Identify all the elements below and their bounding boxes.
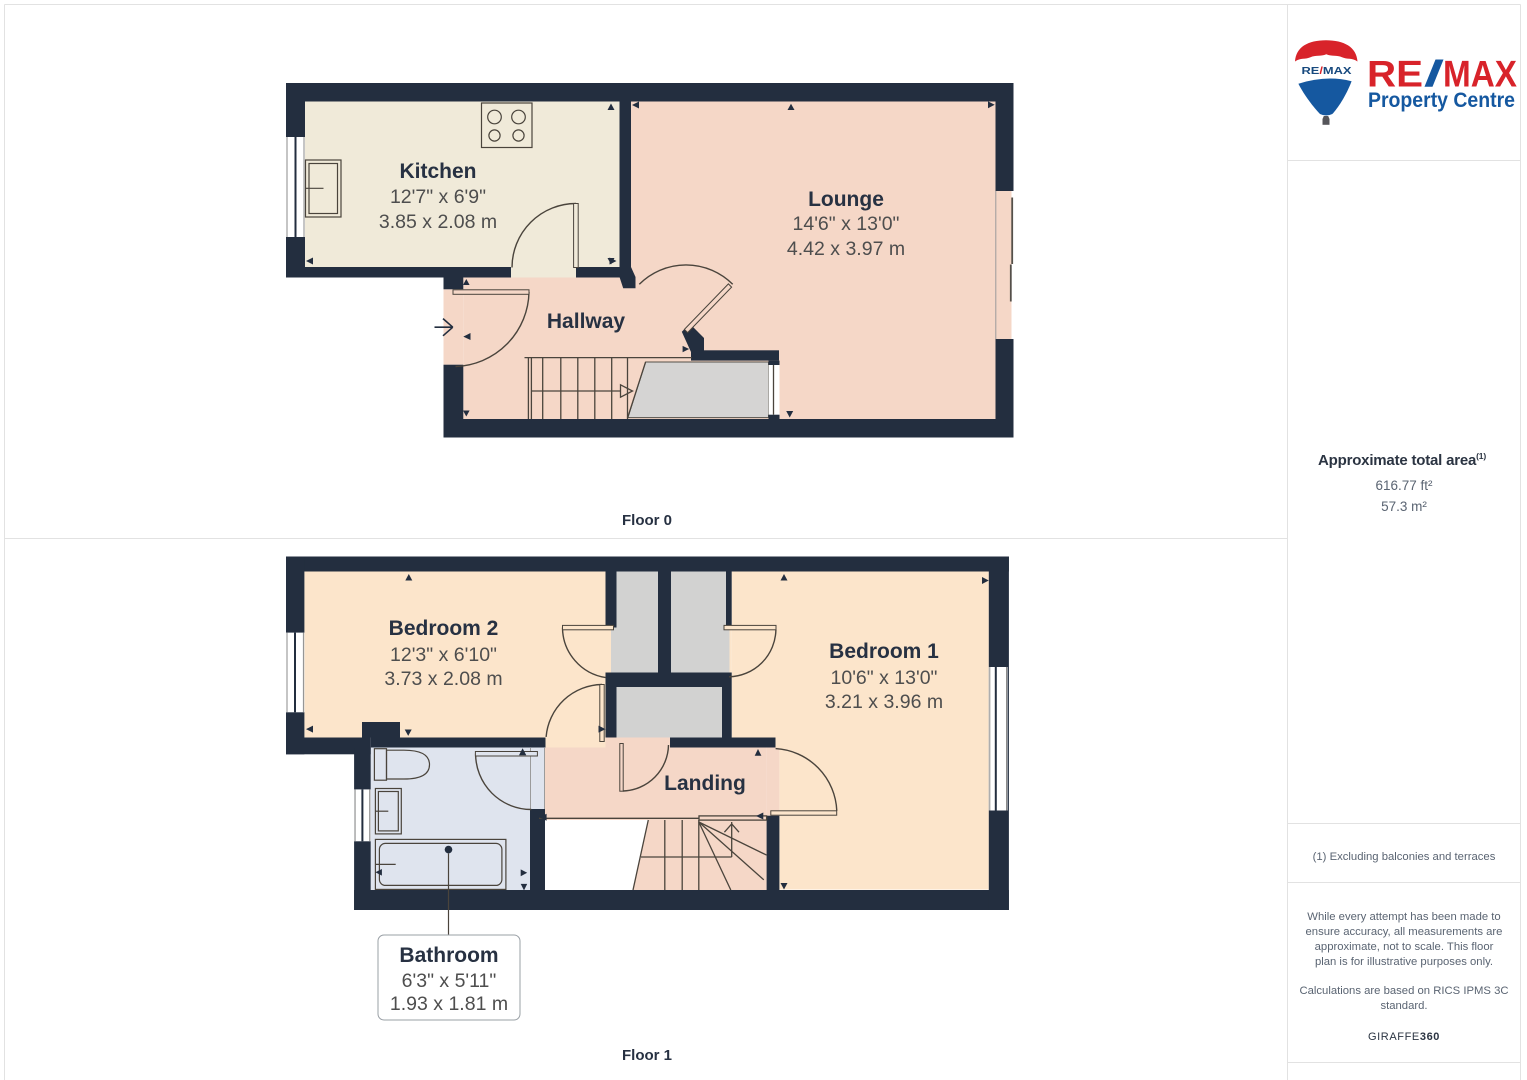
svg-text:3.85 x 2.08 m: 3.85 x 2.08 m (379, 211, 497, 233)
svg-text:plan is for illustrative purpo: plan is for illustrative purposes only. (1315, 956, 1493, 968)
svg-text:GIRAFFE360: GIRAFFE360 (1368, 1031, 1440, 1043)
svg-text:10'6" x 13'0": 10'6" x 13'0" (831, 667, 938, 689)
svg-text:Lounge: Lounge (808, 188, 884, 211)
svg-text:ensure accuracy, all measureme: ensure accuracy, all measurements are (1306, 926, 1503, 938)
svg-text:Approximate total area(1): Approximate total area(1) (1318, 451, 1486, 469)
svg-text:14'6" x 13'0": 14'6" x 13'0" (793, 213, 900, 235)
svg-text:6'3" x 5'11": 6'3" x 5'11" (402, 970, 497, 992)
svg-text:Hallway: Hallway (547, 310, 626, 333)
svg-text:12'7" x 6'9": 12'7" x 6'9" (390, 186, 486, 208)
svg-text:While every attempt has been m: While every attempt has been made to (1307, 911, 1500, 923)
svg-text:Bedroom 1: Bedroom 1 (829, 640, 939, 663)
svg-text:1.93 x 1.81 m: 1.93 x 1.81 m (390, 993, 508, 1015)
svg-text:3.21 x 3.96 m: 3.21 x 3.96 m (825, 691, 943, 713)
svg-text:Property Centre: Property Centre (1368, 88, 1515, 112)
svg-text:4.42 x 3.97 m: 4.42 x 3.97 m (787, 238, 905, 260)
svg-text:Floor 0: Floor 0 (622, 512, 672, 529)
svg-text:57.3 m²: 57.3 m² (1381, 499, 1427, 514)
svg-text:12'3" x 6'10": 12'3" x 6'10" (390, 644, 497, 666)
svg-text:standard.: standard. (1380, 1000, 1427, 1012)
svg-text:Floor 1: Floor 1 (622, 1047, 672, 1064)
svg-text:Bedroom 2: Bedroom 2 (389, 617, 499, 640)
svg-text:616.77 ft²: 616.77 ft² (1375, 478, 1433, 493)
svg-text:Calculations are based on RICS: Calculations are based on RICS IPMS 3C (1299, 985, 1508, 997)
svg-text:(1) Excluding balconies and te: (1) Excluding balconies and terraces (1313, 851, 1496, 863)
svg-text:Kitchen: Kitchen (399, 160, 476, 183)
svg-text:3.73 x 2.08 m: 3.73 x 2.08 m (384, 668, 502, 690)
svg-text:Landing: Landing (664, 772, 746, 795)
svg-text:approximate, not to scale. Thi: approximate, not to scale. This floor (1315, 941, 1494, 953)
svg-text:Bathroom: Bathroom (399, 944, 498, 967)
svg-text:RE/MAX: RE/MAX (1302, 65, 1352, 77)
